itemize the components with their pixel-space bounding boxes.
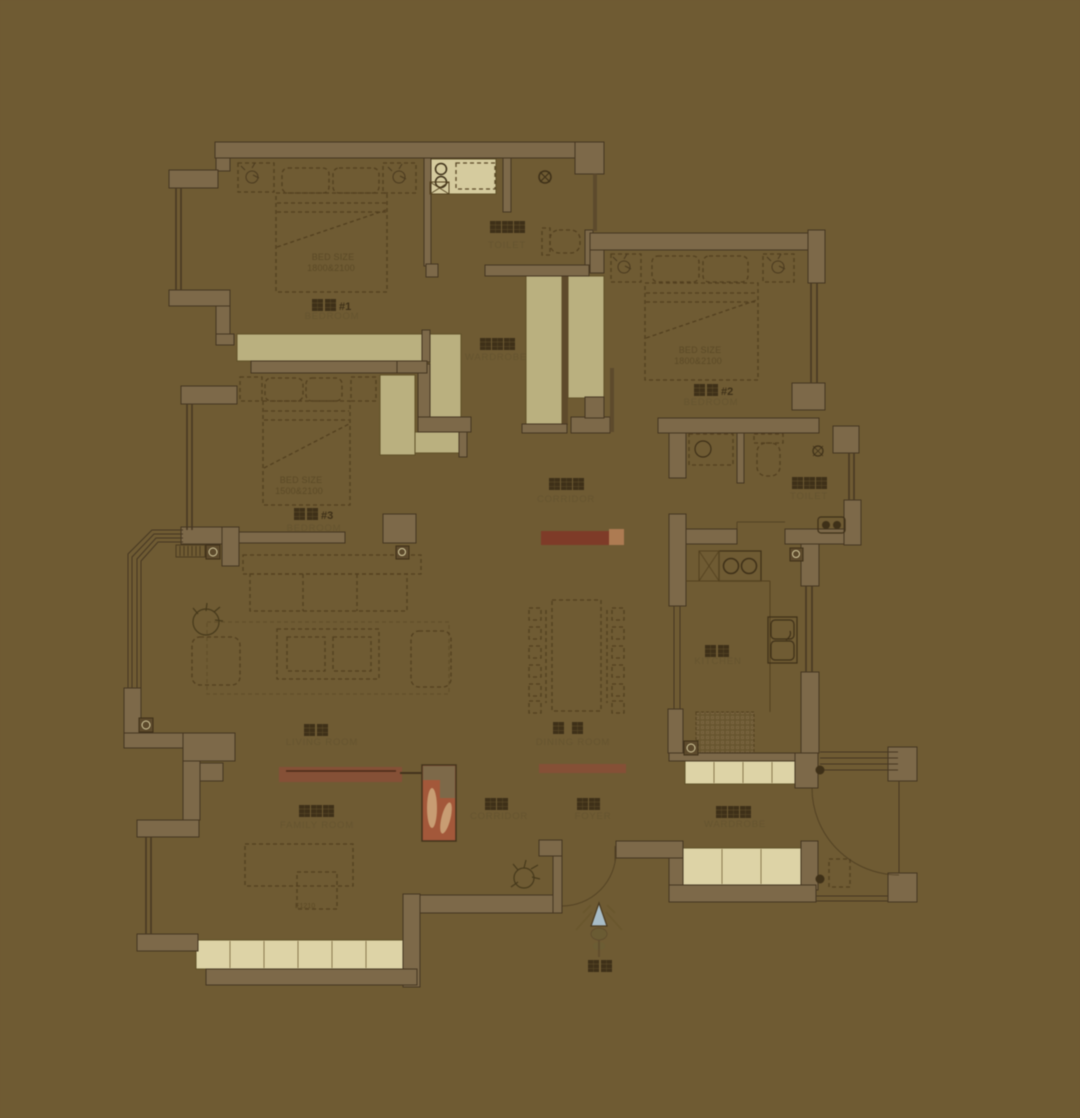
- svg-text:E1210: E1210: [295, 903, 315, 910]
- svg-text:TOILET: TOILET: [488, 240, 526, 251]
- svg-text:WARDROBE: WARDROBE: [704, 819, 766, 830]
- svg-text:BED SIZE: BED SIZE: [679, 345, 722, 355]
- svg-text:1500&2100: 1500&2100: [275, 486, 323, 496]
- svg-text:BED SIZE: BED SIZE: [312, 252, 355, 262]
- svg-text:#3: #3: [321, 510, 333, 522]
- svg-text:CORRIDOR: CORRIDOR: [470, 811, 528, 822]
- svg-text:BEDROOM: BEDROOM: [684, 397, 739, 408]
- svg-text:DINING ROOM: DINING ROOM: [536, 737, 610, 748]
- svg-text:KITCHEN: KITCHEN: [694, 656, 741, 667]
- svg-text:FAMILY ROOM: FAMILY ROOM: [280, 820, 354, 831]
- svg-text:BED SIZE: BED SIZE: [280, 475, 323, 485]
- svg-text:1800&2100: 1800&2100: [307, 263, 355, 273]
- svg-text:1800&2100: 1800&2100: [674, 356, 722, 366]
- svg-text:TOILET: TOILET: [790, 491, 828, 502]
- svg-text:BEDROOM: BEDROOM: [287, 523, 342, 534]
- svg-text:LIVING ROOM: LIVING ROOM: [286, 737, 358, 748]
- svg-text:WARDROBE: WARDROBE: [465, 352, 527, 363]
- svg-text:BEDROOM: BEDROOM: [305, 311, 360, 322]
- svg-text:FOYER: FOYER: [575, 811, 612, 822]
- svg-text:CORRIDOR: CORRIDOR: [537, 494, 595, 505]
